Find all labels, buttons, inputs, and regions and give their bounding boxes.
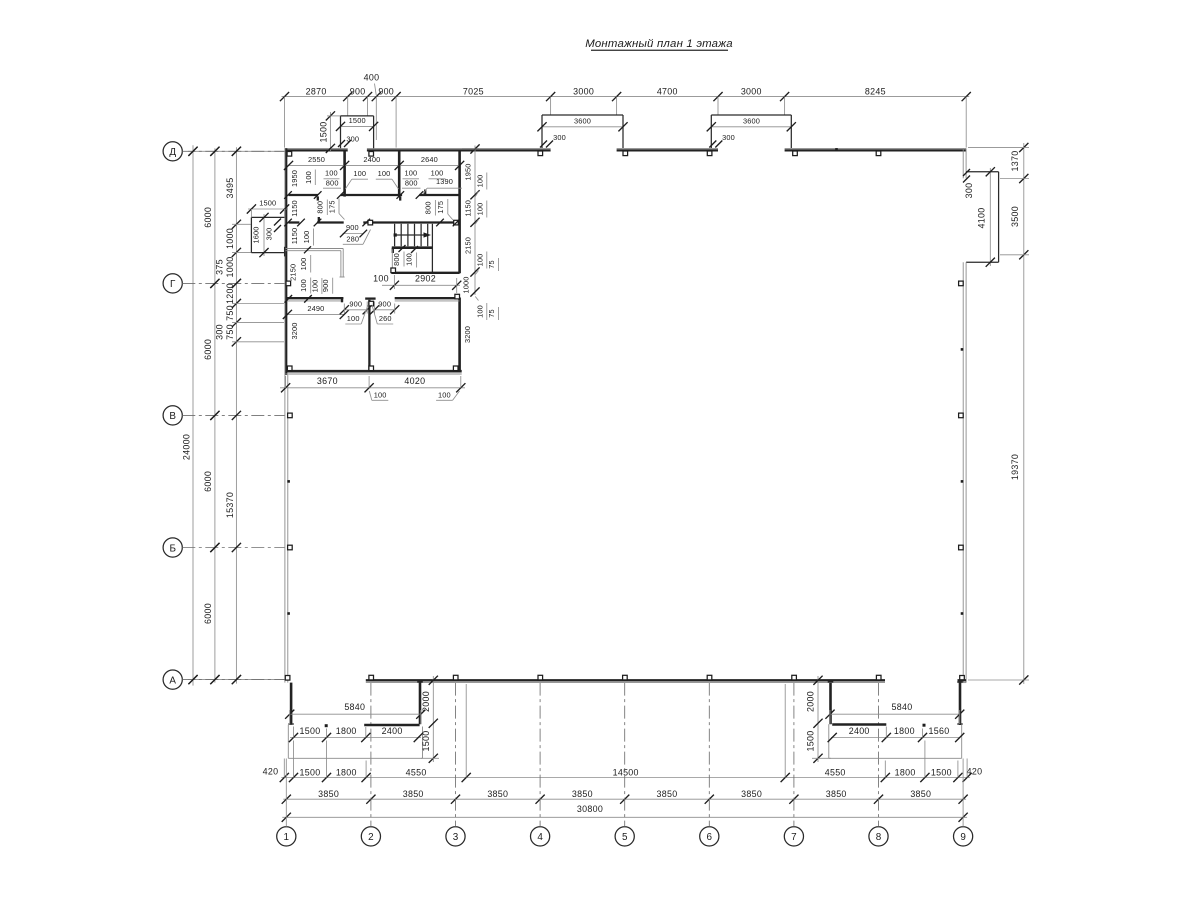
svg-text:3850: 3850 <box>826 789 847 799</box>
svg-text:3850: 3850 <box>910 789 931 799</box>
svg-text:3600: 3600 <box>574 117 591 126</box>
svg-text:3850: 3850 <box>657 789 678 799</box>
svg-text:100: 100 <box>475 175 484 188</box>
svg-text:4020: 4020 <box>404 376 425 386</box>
svg-text:19370: 19370 <box>1010 454 1020 480</box>
svg-text:30800: 30800 <box>577 804 603 814</box>
svg-text:100: 100 <box>299 279 308 292</box>
svg-text:300: 300 <box>553 133 566 142</box>
svg-text:800: 800 <box>405 178 418 187</box>
svg-text:100: 100 <box>475 254 484 267</box>
svg-text:8245: 8245 <box>865 86 886 96</box>
svg-text:175: 175 <box>436 201 445 214</box>
svg-text:260: 260 <box>379 314 392 323</box>
svg-text:750: 750 <box>225 324 235 340</box>
svg-text:2870: 2870 <box>306 86 327 96</box>
svg-text:6000: 6000 <box>203 339 213 360</box>
svg-text:100: 100 <box>353 169 366 178</box>
svg-text:2150: 2150 <box>288 264 297 281</box>
svg-text:2400: 2400 <box>382 726 403 736</box>
svg-text:800: 800 <box>424 201 433 214</box>
svg-text:7025: 7025 <box>463 86 484 96</box>
svg-text:2490: 2490 <box>307 304 324 313</box>
svg-text:Г: Г <box>170 279 176 290</box>
svg-text:280: 280 <box>346 234 359 243</box>
svg-text:7: 7 <box>791 832 797 843</box>
svg-text:100: 100 <box>438 391 451 400</box>
svg-text:2000: 2000 <box>421 691 431 712</box>
svg-text:100: 100 <box>347 314 360 323</box>
svg-text:2902: 2902 <box>415 274 436 284</box>
svg-text:1000: 1000 <box>225 228 235 249</box>
svg-text:6000: 6000 <box>203 207 213 228</box>
svg-text:100: 100 <box>475 203 484 216</box>
svg-text:2400: 2400 <box>849 726 870 736</box>
svg-text:8: 8 <box>876 832 882 843</box>
svg-text:400: 400 <box>364 73 380 83</box>
svg-text:3200: 3200 <box>290 322 299 339</box>
svg-text:6000: 6000 <box>203 603 213 624</box>
svg-text:9: 9 <box>960 832 966 843</box>
svg-text:24000: 24000 <box>182 434 192 460</box>
svg-text:100: 100 <box>302 231 311 244</box>
svg-text:100: 100 <box>310 280 319 293</box>
svg-text:100: 100 <box>475 305 484 318</box>
svg-text:Монтажный план 1 этажа: Монтажный план 1 этажа <box>585 38 733 50</box>
svg-text:3600: 3600 <box>743 117 760 126</box>
svg-text:1800: 1800 <box>336 726 357 736</box>
svg-text:6000: 6000 <box>203 471 213 492</box>
svg-text:1500: 1500 <box>931 767 952 777</box>
svg-text:4: 4 <box>537 832 543 843</box>
svg-text:4100: 4100 <box>976 208 986 229</box>
svg-text:1500: 1500 <box>259 198 276 207</box>
svg-text:15370: 15370 <box>225 492 235 518</box>
svg-text:900: 900 <box>350 86 366 96</box>
svg-text:1600: 1600 <box>251 226 260 243</box>
svg-text:3850: 3850 <box>741 789 762 799</box>
svg-text:3850: 3850 <box>403 789 424 799</box>
svg-text:А: А <box>169 675 176 686</box>
svg-text:75: 75 <box>487 309 496 318</box>
svg-text:2: 2 <box>368 832 374 843</box>
svg-text:3000: 3000 <box>573 86 594 96</box>
svg-text:300: 300 <box>964 183 974 199</box>
svg-text:100: 100 <box>378 169 391 178</box>
svg-text:1800: 1800 <box>894 726 915 736</box>
svg-text:100: 100 <box>405 253 414 266</box>
svg-text:4550: 4550 <box>825 767 846 777</box>
svg-text:1000: 1000 <box>462 276 471 293</box>
svg-text:5840: 5840 <box>344 702 365 712</box>
svg-text:2000: 2000 <box>806 691 816 712</box>
svg-text:750: 750 <box>225 305 235 321</box>
svg-text:Б: Б <box>169 543 175 554</box>
svg-text:1500: 1500 <box>319 122 329 143</box>
svg-text:1500: 1500 <box>349 116 366 125</box>
svg-text:2550: 2550 <box>308 155 325 164</box>
svg-text:1390: 1390 <box>436 177 453 186</box>
svg-text:4700: 4700 <box>657 86 678 96</box>
svg-text:175: 175 <box>327 200 336 213</box>
svg-text:3850: 3850 <box>318 789 339 799</box>
svg-text:900: 900 <box>321 279 330 292</box>
svg-text:1150: 1150 <box>290 200 299 217</box>
svg-text:3500: 3500 <box>1010 206 1020 227</box>
svg-text:1500: 1500 <box>806 731 816 752</box>
svg-text:1800: 1800 <box>336 767 357 777</box>
svg-text:100: 100 <box>304 171 313 184</box>
svg-text:900: 900 <box>349 299 362 308</box>
svg-text:100: 100 <box>374 391 387 400</box>
svg-text:3495: 3495 <box>225 178 235 199</box>
svg-text:4550: 4550 <box>406 767 427 777</box>
svg-text:300: 300 <box>722 133 735 142</box>
svg-text:1560: 1560 <box>929 726 950 736</box>
svg-text:3850: 3850 <box>487 789 508 799</box>
svg-text:1: 1 <box>284 832 290 843</box>
svg-text:1500: 1500 <box>300 726 321 736</box>
svg-text:375: 375 <box>215 259 225 275</box>
svg-text:1800: 1800 <box>895 767 916 777</box>
svg-text:100: 100 <box>373 274 389 284</box>
svg-text:900: 900 <box>378 86 394 96</box>
svg-text:В: В <box>169 411 176 422</box>
svg-text:800: 800 <box>316 201 325 214</box>
svg-text:3670: 3670 <box>317 376 338 386</box>
svg-text:800: 800 <box>326 178 339 187</box>
svg-text:1150: 1150 <box>290 228 299 245</box>
svg-text:100: 100 <box>405 169 418 178</box>
svg-text:75: 75 <box>487 260 496 269</box>
svg-text:300: 300 <box>264 228 273 241</box>
svg-text:1500: 1500 <box>300 767 321 777</box>
svg-text:Д: Д <box>169 147 176 158</box>
svg-text:1950: 1950 <box>463 163 472 180</box>
svg-text:1950: 1950 <box>290 170 299 187</box>
svg-text:1000: 1000 <box>225 257 235 278</box>
svg-text:100: 100 <box>299 258 308 271</box>
svg-text:2640: 2640 <box>421 155 438 164</box>
svg-text:1150: 1150 <box>463 200 472 217</box>
svg-text:1370: 1370 <box>1010 151 1020 172</box>
svg-text:3200: 3200 <box>463 326 472 343</box>
svg-text:3: 3 <box>453 832 459 843</box>
svg-text:5: 5 <box>622 832 628 843</box>
svg-text:800: 800 <box>392 253 401 266</box>
svg-text:14500: 14500 <box>613 767 639 777</box>
svg-text:6: 6 <box>707 832 713 843</box>
svg-text:420: 420 <box>967 766 983 776</box>
svg-text:3000: 3000 <box>741 86 762 96</box>
svg-text:3850: 3850 <box>572 789 593 799</box>
svg-text:5840: 5840 <box>892 702 913 712</box>
svg-text:2400: 2400 <box>363 155 380 164</box>
svg-text:100: 100 <box>325 169 338 178</box>
svg-text:900: 900 <box>346 223 359 232</box>
svg-text:900: 900 <box>378 299 391 308</box>
svg-text:300: 300 <box>215 324 225 340</box>
svg-text:2150: 2150 <box>463 237 472 254</box>
svg-text:420: 420 <box>263 766 279 776</box>
